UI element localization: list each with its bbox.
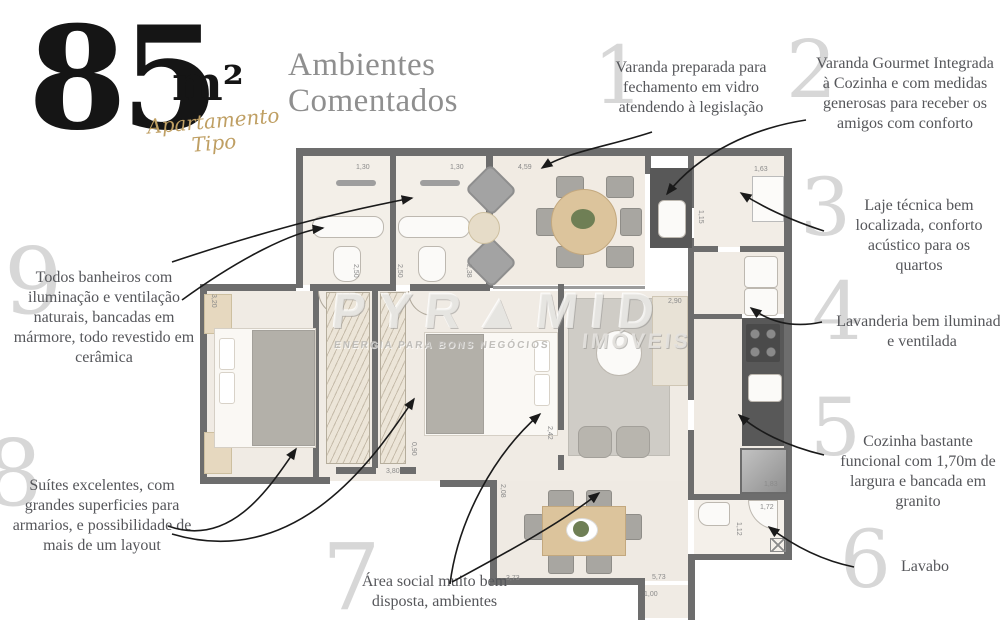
dining-chair (586, 554, 612, 574)
callout-5-text: Cozinha bastante funcional com 1,70m de … (832, 432, 1000, 512)
dining-chair (606, 246, 634, 268)
dim-label: 3,20 (210, 294, 217, 308)
bathroom-sink-counter (398, 216, 470, 238)
wall (688, 560, 695, 620)
callout-1-text: Varanda preparada para fechamento em vid… (612, 58, 770, 118)
callout-3-text: Laje técnica bem localizada, conforto ac… (843, 196, 995, 276)
page: { "header": { "area_value": "85", "area_… (0, 0, 1000, 620)
wall (200, 284, 296, 291)
callout-2-text: Varanda Gourmet Integrada à Cozinha e co… (815, 54, 995, 134)
pillow (219, 372, 235, 404)
shaft-symbol (770, 538, 786, 552)
watermark-tagline: ENERGIA PARA BONS NEGÓCIOS (333, 340, 550, 351)
wall (296, 148, 303, 288)
wall (688, 430, 694, 500)
dim-label: 2,90 (668, 298, 682, 305)
dim-label: 4,59 (518, 164, 532, 171)
wall (688, 554, 790, 560)
gourmet-sink (658, 200, 686, 238)
dim-label: 1,12 (735, 522, 742, 536)
dining-chair (620, 208, 642, 236)
hall-floor (645, 585, 688, 618)
dim-label: 1,63 (754, 166, 768, 173)
blanket (252, 330, 315, 446)
dim-label: 1,83 (764, 481, 778, 488)
wall (490, 480, 497, 585)
dim-label: 1,30 (450, 164, 464, 171)
pillow (534, 374, 550, 406)
shower-rail (420, 180, 460, 186)
dim-label: 1,00 (644, 591, 658, 598)
dim-label: 0,90 (410, 442, 417, 456)
oven (748, 374, 782, 402)
side-table (468, 212, 500, 244)
table-plant (573, 521, 589, 537)
laundry-tank (744, 256, 778, 288)
dim-label: 1,72 (760, 504, 774, 511)
wall (740, 246, 786, 252)
callout-6-text: Lavabo (880, 557, 970, 577)
dim-label: 1,15 (697, 210, 704, 224)
watermark-suffix: IMÓVEIS (581, 330, 692, 354)
washing-machine (744, 288, 778, 316)
wall (694, 246, 718, 252)
dim-label: 3,80 (386, 468, 400, 475)
table-centerpiece (571, 209, 595, 229)
stove (746, 324, 780, 362)
dining-chair (606, 176, 634, 198)
pillow (219, 338, 235, 370)
dim-label: 2,42 (546, 426, 553, 440)
wall (200, 477, 330, 484)
dim-label: 2,38 (465, 264, 472, 278)
armchair (616, 426, 650, 458)
dim-label: 2,50 (396, 264, 403, 278)
wall (336, 467, 376, 474)
glass-panel (752, 176, 784, 222)
shower-rail (336, 180, 376, 186)
toilet (418, 246, 446, 282)
wall (400, 467, 416, 474)
wall (638, 578, 645, 620)
callout-4-text: Lavanderia bem iluminada e ventilada (836, 312, 1000, 352)
bathroom-sink-counter (312, 216, 384, 238)
wall (694, 314, 742, 319)
dim-label: 5,73 (652, 574, 666, 581)
lavabo-toilet (698, 502, 730, 526)
dim-label: 1,30 (356, 164, 370, 171)
wall (440, 480, 497, 487)
dining-chair (548, 554, 574, 574)
callout-7-text: Área social muito bem disposta, ambiente… (352, 572, 517, 612)
dining-chair (524, 514, 544, 540)
callout-9-text: Todos banheiros com iluminação e ventila… (6, 268, 202, 368)
callout-8-text: Suítes excelentes, com grandes superfici… (6, 476, 198, 556)
dim-label: 2,50 (352, 264, 359, 278)
wall (558, 455, 564, 470)
wall (296, 148, 792, 156)
armchair (578, 426, 612, 458)
dim-label: 2,08 (499, 484, 506, 498)
